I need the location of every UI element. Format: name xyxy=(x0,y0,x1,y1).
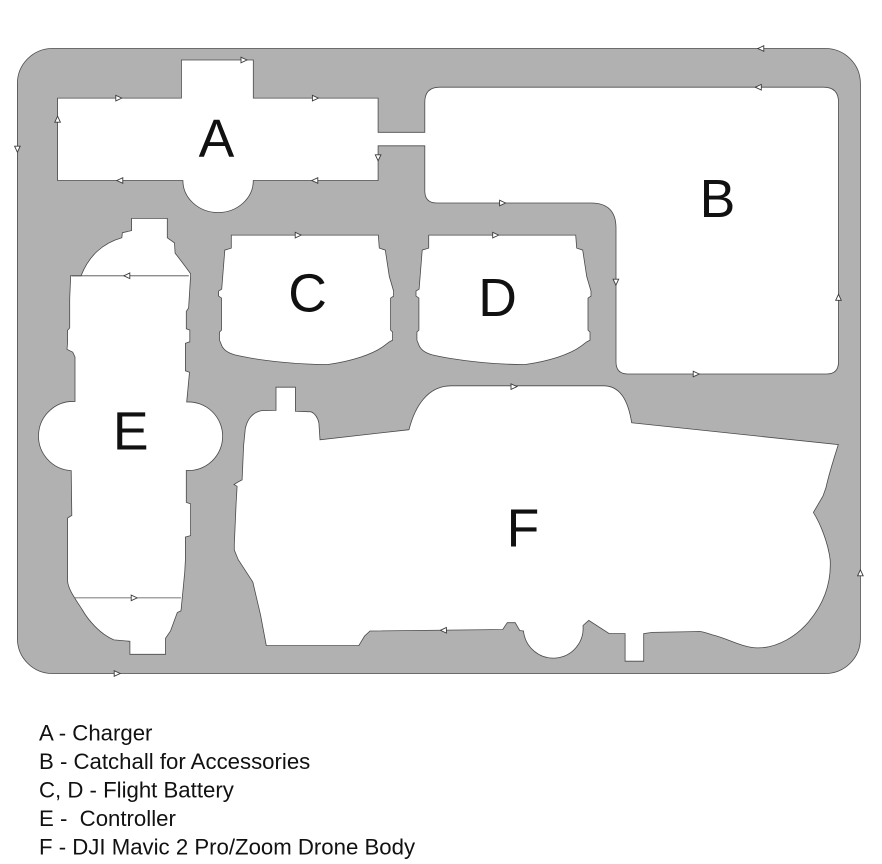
svg-text:B: B xyxy=(700,170,736,229)
svg-text:A: A xyxy=(199,110,235,169)
svg-text:C, D - Flight Battery: C, D - Flight Battery xyxy=(39,778,235,803)
svg-text:E - Controller: E - Controller xyxy=(39,806,176,831)
svg-text:A - Charger: A - Charger xyxy=(39,721,153,746)
svg-text:C: C xyxy=(288,264,327,323)
svg-text:F - DJI Mavic 2 Pro/Zoom Drone: F - DJI Mavic 2 Pro/Zoom Drone Body xyxy=(39,835,416,860)
svg-text:D: D xyxy=(478,269,517,328)
svg-text:E: E xyxy=(113,403,149,462)
svg-text:B - Catchall for Accessories: B - Catchall for Accessories xyxy=(39,749,310,774)
svg-text:F: F xyxy=(507,500,540,559)
